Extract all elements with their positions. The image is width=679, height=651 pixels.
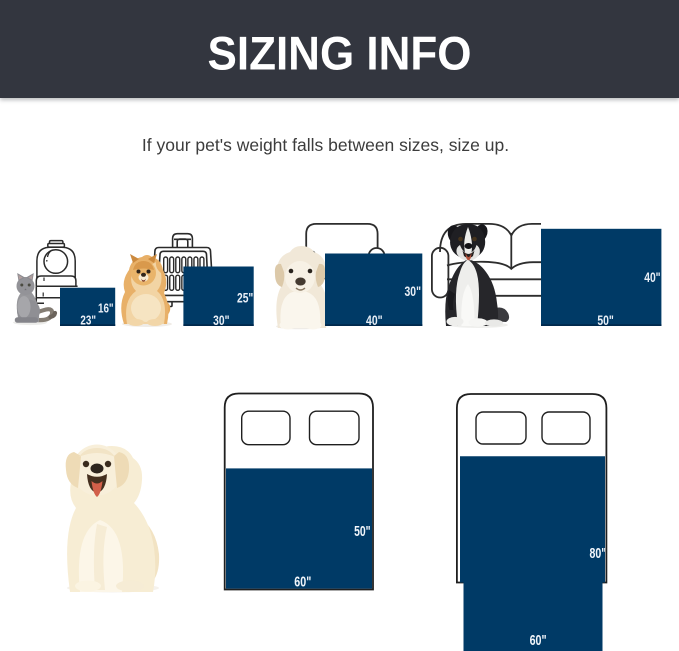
svg-text:60": 60" xyxy=(294,573,311,590)
svg-text:40": 40" xyxy=(366,312,383,328)
svg-text:80": 80" xyxy=(590,545,607,562)
svg-text:40": 40" xyxy=(644,269,660,285)
svg-text:60": 60" xyxy=(530,632,547,649)
svg-text:30": 30" xyxy=(213,312,229,328)
svg-text:50": 50" xyxy=(354,523,371,540)
svg-text:30": 30" xyxy=(405,283,422,299)
svg-text:16": 16" xyxy=(98,300,114,315)
svg-text:25": 25" xyxy=(237,289,253,305)
svg-text:23": 23" xyxy=(80,313,96,328)
svg-text:50": 50" xyxy=(597,312,614,328)
